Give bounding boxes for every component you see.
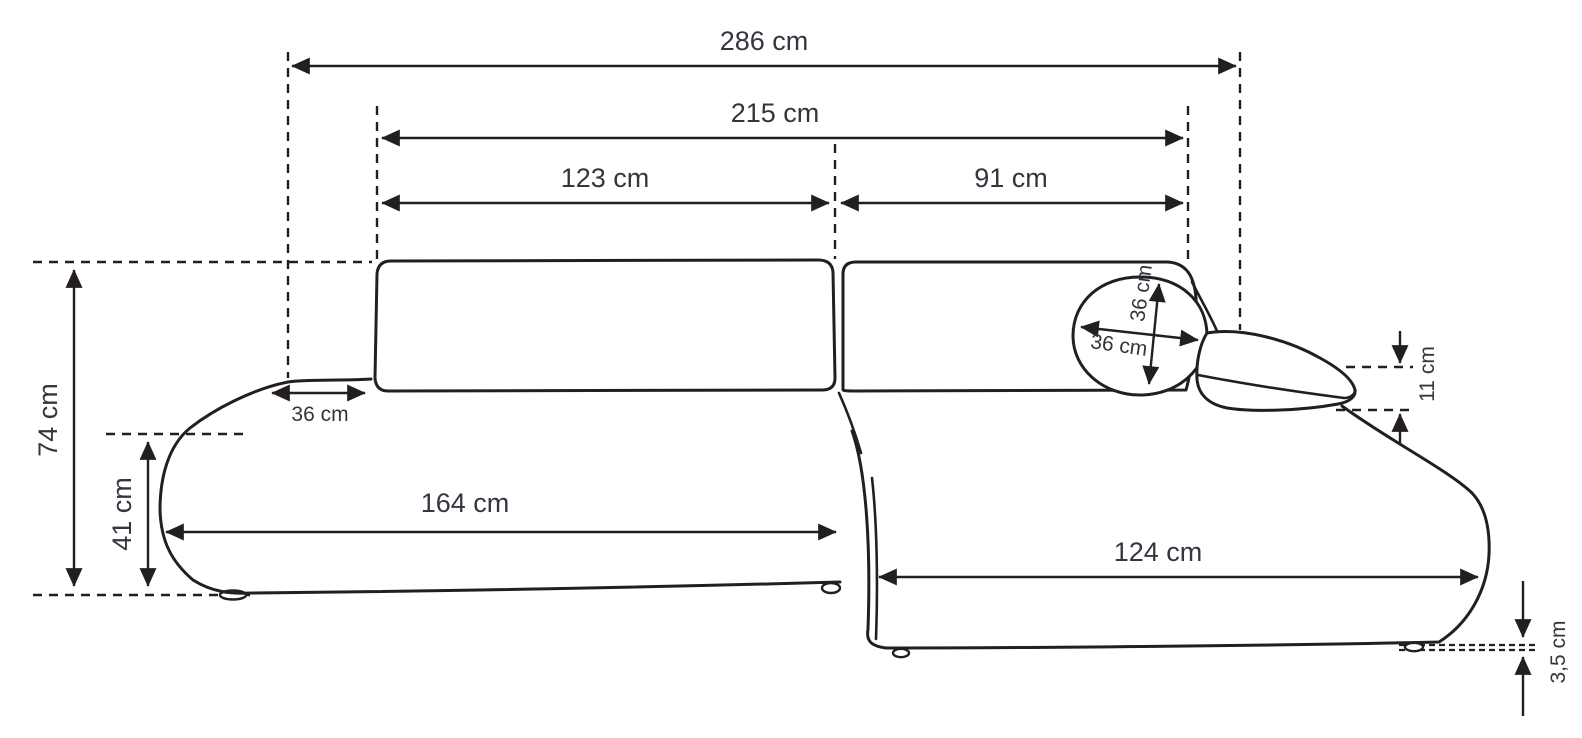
sofa-dimension-diagram: 286 cm 215 cm 123 cm 91 cm 164 cm 124 cm… [0,0,1582,738]
label-left-backrest-width: 123 cm [561,163,650,193]
sofa-drawing [160,260,1489,657]
seat-junction-crease [839,393,861,453]
label-chaise-length: 124 cm [1114,537,1203,567]
label-overall-width: 286 cm [720,26,809,56]
sofa-left-body-outline [160,379,840,593]
label-armrest-width: 36 cm [291,403,348,426]
label-side-pillow-thickness: 11 cm [1416,346,1439,402]
chaise-outline [886,406,1489,648]
chaise-inner-crease [872,478,877,639]
label-seat-length: 164 cm [421,488,510,518]
label-backrest-width: 215 cm [731,98,820,128]
chaise-front-edge [852,431,886,648]
chaise-foot-left [893,649,909,657]
label-leg-height: 3,5 cm [1547,620,1570,683]
label-right-backrest-width: 91 cm [974,163,1048,193]
label-overall-height: 74 cm [33,383,63,457]
label-seat-height: 41 cm [107,477,137,551]
armrest-pillow [1197,332,1355,411]
diagram-canvas: 286 cm 215 cm 123 cm 91 cm 164 cm 124 cm… [0,0,1582,738]
sofa-foot-front-mid [822,583,840,593]
backrest-cushion-left [375,260,835,391]
